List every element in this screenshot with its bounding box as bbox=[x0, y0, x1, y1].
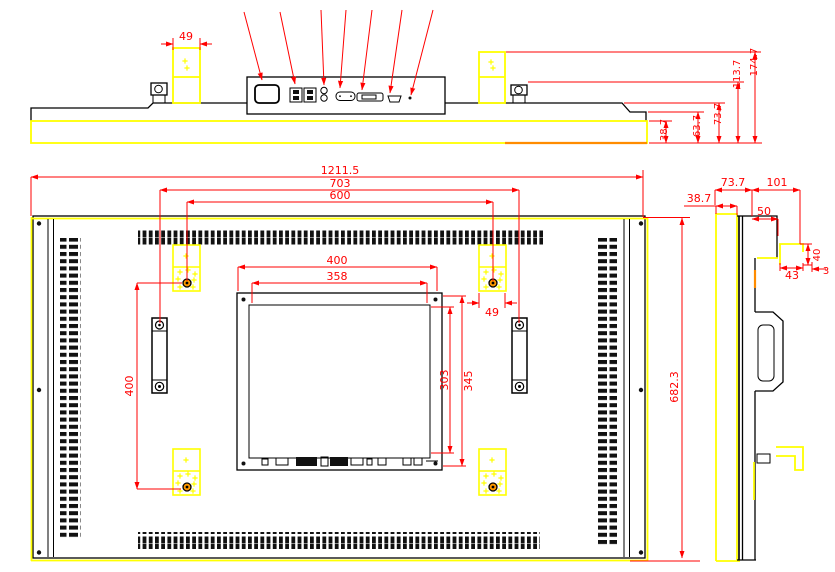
dim-label: 400 bbox=[123, 376, 136, 397]
dim-label: 49 bbox=[485, 306, 499, 319]
dim-label: 40 bbox=[812, 249, 823, 262]
dim-pc-box-opening-width: 358 bbox=[252, 270, 427, 303]
dim-label: 38.7 bbox=[687, 192, 712, 205]
dim-bracket-width: 43 bbox=[780, 263, 803, 282]
technical-drawing: 49 38.7 63.7 73.7 113.7 174.7 bbox=[0, 0, 835, 572]
mount-pad-bottom-left bbox=[173, 449, 200, 495]
dim-label: 600 bbox=[330, 189, 351, 202]
dim-label: 73.7 bbox=[713, 103, 724, 125]
dim-side-bay-depth: 50 bbox=[752, 205, 778, 236]
rear-view: 1211.5 703 600 400 358 345 bbox=[31, 164, 700, 561]
top-view-bezel-strip bbox=[31, 121, 647, 143]
right-vent-grille bbox=[596, 238, 617, 545]
right-handle-bracket bbox=[512, 318, 527, 393]
top-view-left-pad-block bbox=[173, 48, 200, 103]
cad-drawing-canvas: 49 38.7 63.7 73.7 113.7 174.7 bbox=[0, 0, 835, 572]
hdmi-port-icon bbox=[388, 96, 401, 102]
dim-label: 174.7 bbox=[749, 48, 760, 77]
dim-label: 73.7 bbox=[721, 176, 746, 189]
dim-label: 43 bbox=[785, 269, 799, 282]
audio-jacks-icon bbox=[321, 87, 327, 101]
dim-label: 50 bbox=[757, 205, 771, 218]
top-view-body-outline bbox=[31, 103, 646, 121]
dim-pad-width: 49 bbox=[467, 293, 517, 319]
dim-label: 63.7 bbox=[692, 115, 703, 137]
dim-side-front-depth: 73.7 bbox=[715, 176, 752, 216]
power-inlet-icon bbox=[255, 85, 279, 103]
pc-box bbox=[237, 293, 442, 470]
dim-label: 113.7 bbox=[732, 60, 743, 89]
dim-label: 1211.5 bbox=[321, 164, 360, 177]
top-vent-grille bbox=[138, 228, 543, 245]
dvi-port-icon bbox=[357, 93, 383, 101]
wall-hook-bracket bbox=[776, 447, 803, 470]
bottom-vent-grille bbox=[138, 532, 540, 549]
ir-sensor-icon bbox=[409, 97, 412, 100]
top-view-right-ear bbox=[511, 85, 527, 103]
top-view-right-pad-block bbox=[479, 52, 505, 103]
dim-label: 400 bbox=[327, 254, 348, 267]
dim-label: 303 bbox=[438, 370, 451, 391]
side-view: 38.7 73.7 101 50 43 40 bbox=[684, 176, 829, 561]
side-front-panel bbox=[716, 214, 740, 561]
dim-top-pad-width: 49 bbox=[161, 30, 212, 50]
side-rear-profile bbox=[737, 216, 783, 560]
dim-bracket-lip: 3 bbox=[812, 262, 829, 277]
top-view-left-ear bbox=[151, 83, 167, 103]
mount-pad-bottom-right bbox=[479, 449, 506, 495]
connector-bay bbox=[247, 77, 445, 114]
vga-port-icon bbox=[336, 92, 355, 101]
dim-label: 345 bbox=[462, 371, 475, 392]
dim-label: 358 bbox=[327, 270, 348, 283]
dim-label: 49 bbox=[179, 30, 193, 43]
left-handle-bracket bbox=[152, 318, 167, 393]
dim-side-bezel-depth: 38.7 bbox=[684, 192, 737, 215]
ports bbox=[255, 85, 412, 103]
usb-ports-icon bbox=[290, 88, 316, 102]
dim-label: 101 bbox=[767, 176, 788, 189]
dim-label: 3 bbox=[823, 266, 829, 277]
top-view: 49 38.7 63.7 73.7 113.7 174.7 bbox=[31, 10, 762, 143]
mount-rail-section bbox=[780, 244, 803, 265]
dim-label: 682.3 bbox=[668, 371, 681, 403]
dim-label: 38.7 bbox=[659, 119, 670, 141]
dim-depth-stack: 38.7 63.7 73.7 113.7 174.7 bbox=[506, 48, 762, 143]
port-leader-lines bbox=[244, 10, 433, 95]
left-vent-grille bbox=[60, 238, 81, 540]
